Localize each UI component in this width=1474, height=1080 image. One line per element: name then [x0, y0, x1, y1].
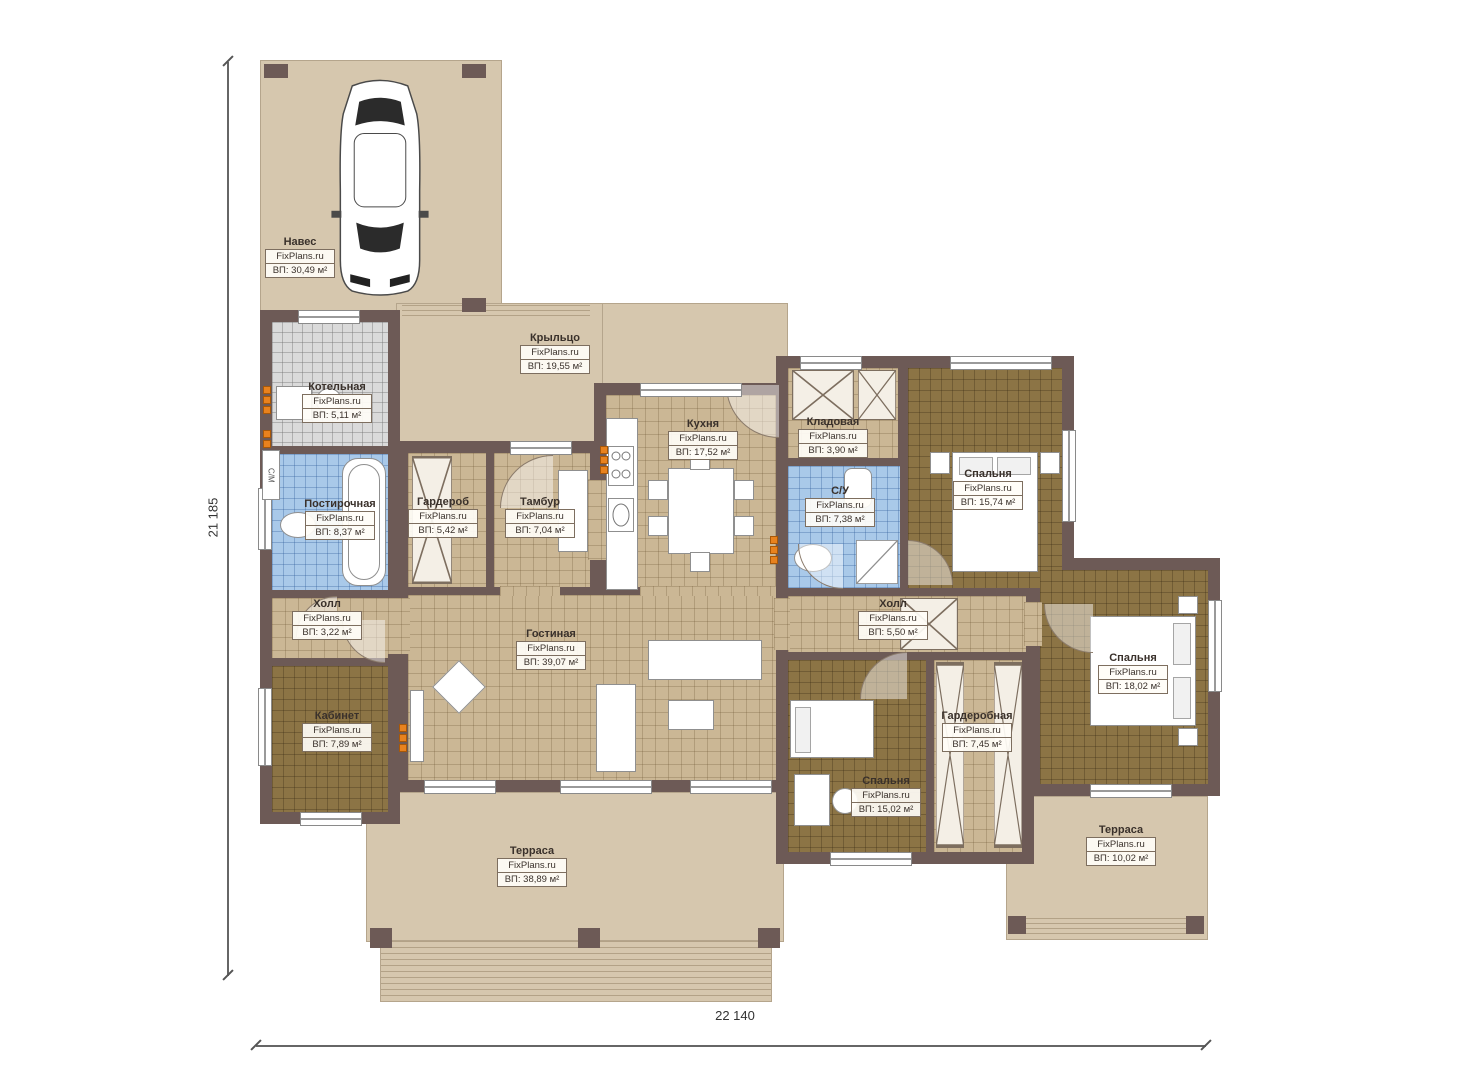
coffee-table — [668, 700, 714, 730]
room-area: ВП: 15,74 м² — [953, 495, 1023, 510]
radiator-marker — [263, 384, 271, 416]
room-label-closet: Гардеробная FixPlans.ru ВП: 7,45 м² — [922, 710, 1032, 752]
room-name: Гардеробная — [922, 710, 1032, 722]
room-name: Спальня — [933, 468, 1043, 480]
room-brand: FixPlans.ru — [858, 611, 928, 626]
dimension-line-horizontal — [256, 1045, 1206, 1047]
kitchen-sink — [608, 498, 634, 532]
room-brand: FixPlans.ru — [851, 788, 921, 803]
room-label-living: Гостиная FixPlans.ru ВП: 39,07 м² — [496, 628, 606, 670]
dimension-height-label: 21 185 — [206, 483, 221, 553]
room-name: Гостиная — [496, 628, 606, 640]
floor-plan: С/М — [0, 0, 1474, 1080]
chair — [734, 480, 754, 500]
room-area: ВП: 18,02 м² — [1098, 679, 1168, 694]
room-brand: FixPlans.ru — [1086, 837, 1156, 852]
room-name: Кабинет — [282, 710, 392, 722]
bed — [790, 700, 874, 758]
room-name: Навес — [245, 236, 355, 248]
opening — [640, 586, 776, 596]
storage-cabinet — [858, 370, 896, 420]
room-area: ВП: 38,89 м² — [497, 872, 567, 887]
room-area: ВП: 8,37 м² — [305, 525, 375, 540]
room-label-porch: Крыльцо FixPlans.ru ВП: 19,55 м² — [500, 332, 610, 374]
window — [640, 383, 742, 397]
room-area: ВП: 17,52 м² — [668, 445, 738, 460]
room-brand: FixPlans.ru — [798, 429, 868, 444]
room-name: Постирочная — [285, 498, 395, 510]
room-area: ВП: 7,89 м² — [302, 737, 372, 752]
window — [1208, 600, 1222, 692]
room-name: Тамбур — [485, 496, 595, 508]
terrace-post — [578, 928, 600, 948]
closet-cabinet — [936, 662, 964, 848]
room-name: Кладовая — [778, 416, 888, 428]
entrance-door — [510, 441, 572, 455]
room-brand: FixPlans.ru — [408, 509, 478, 524]
room-label-vestibule: Тамбур FixPlans.ru ВП: 7,04 м² — [485, 496, 595, 538]
room-area: ВП: 30,49 м² — [265, 263, 335, 278]
dimension-line-vertical — [227, 62, 229, 976]
room-label-pantry: Кладовая FixPlans.ru ВП: 3,90 м² — [778, 416, 888, 458]
carport-post — [462, 64, 486, 78]
room-area: ВП: 39,07 м² — [516, 655, 586, 670]
room-brand: FixPlans.ru — [265, 249, 335, 264]
room-label-bedroom1: Спальня FixPlans.ru ВП: 15,74 м² — [933, 468, 1043, 510]
room-area: ВП: 7,38 м² — [805, 512, 875, 527]
porch-steps — [402, 305, 590, 317]
room-name: Крыльцо — [500, 332, 610, 344]
tv-stand — [410, 690, 424, 762]
closet-cabinet — [994, 662, 1022, 848]
room-brand: FixPlans.ru — [497, 858, 567, 873]
carport-post — [264, 64, 288, 78]
room-brand: FixPlans.ru — [953, 481, 1023, 496]
window — [1062, 430, 1076, 522]
window — [950, 356, 1052, 370]
radiator-marker — [770, 534, 778, 566]
window — [258, 688, 272, 766]
opening — [1024, 602, 1042, 646]
room-brand: FixPlans.ru — [302, 394, 372, 409]
window — [298, 310, 360, 324]
carport-post — [462, 298, 486, 312]
window — [300, 812, 362, 826]
room-brand: FixPlans.ru — [305, 511, 375, 526]
room-area: ВП: 5,11 м² — [302, 408, 372, 423]
room-label-terrace1: Терраса FixPlans.ru ВП: 38,89 м² — [477, 845, 587, 887]
nightstand — [1178, 728, 1198, 746]
room-area: ВП: 15,02 м² — [851, 802, 921, 817]
room-name: Спальня — [831, 775, 941, 787]
room-name: Холл — [838, 598, 948, 610]
chair — [648, 516, 668, 536]
shower — [856, 540, 898, 584]
room-label-hall2: Холл FixPlans.ru ВП: 5,50 м² — [838, 598, 948, 640]
room-area: ВП: 10,02 м² — [1086, 851, 1156, 866]
room-brand: FixPlans.ru — [505, 509, 575, 524]
sofa — [596, 684, 636, 772]
terrace2-steps — [1010, 918, 1202, 938]
room-area: ВП: 19,55 м² — [520, 359, 590, 374]
terrace1-steps — [380, 940, 772, 1002]
stove — [608, 446, 634, 486]
chair — [734, 516, 754, 536]
room-brand: FixPlans.ru — [520, 345, 590, 360]
terrace-post — [1008, 916, 1026, 934]
nightstand — [1178, 596, 1198, 614]
window — [800, 356, 862, 370]
room-name: Кухня — [648, 418, 758, 430]
room-name: Спальня — [1078, 652, 1188, 664]
terrace-post — [1186, 916, 1204, 934]
radiator-marker — [600, 444, 608, 476]
room-name: Холл — [272, 598, 382, 610]
room-brand: FixPlans.ru — [805, 498, 875, 513]
porch-area-right — [602, 303, 788, 387]
room-label-laundry: Постирочная FixPlans.ru ВП: 8,37 м² — [285, 498, 395, 540]
terrace-post — [370, 928, 392, 948]
room-label-bathroom: С/У FixPlans.ru ВП: 7,38 м² — [785, 485, 895, 527]
room-brand: FixPlans.ru — [942, 723, 1012, 738]
room-label-study: Кабинет FixPlans.ru ВП: 7,89 м² — [282, 710, 392, 752]
room-area: ВП: 3,90 м² — [798, 443, 868, 458]
terrace-door — [1090, 784, 1172, 798]
room-label-bedroom2: Спальня FixPlans.ru ВП: 15,02 м² — [831, 775, 941, 817]
sofa — [648, 640, 762, 680]
room-label-wardrobe: Гардероб FixPlans.ru ВП: 5,42 м² — [388, 496, 498, 538]
room-brand: FixPlans.ru — [302, 723, 372, 738]
opening — [774, 598, 790, 650]
storage-cabinet — [792, 370, 854, 420]
room-label-boiler: Котельная FixPlans.ru ВП: 5,11 м² — [282, 381, 392, 423]
room-brand: FixPlans.ru — [516, 641, 586, 656]
chair — [690, 552, 710, 572]
room-brand: FixPlans.ru — [668, 431, 738, 446]
opening — [388, 598, 410, 654]
room-area: ВП: 7,45 м² — [942, 737, 1012, 752]
room-label-carport: Навес FixPlans.ru ВП: 30,49 м² — [245, 236, 355, 278]
room-brand: FixPlans.ru — [292, 611, 362, 626]
nightstand — [1040, 452, 1060, 474]
window — [690, 780, 772, 794]
room-label-terrace2: Терраса FixPlans.ru ВП: 10,02 м² — [1066, 824, 1176, 866]
window — [424, 780, 496, 794]
room-name: Терраса — [477, 845, 587, 857]
desk — [794, 774, 830, 826]
room-name: Терраса — [1066, 824, 1176, 836]
window — [830, 852, 912, 866]
room-label-hall1: Холл FixPlans.ru ВП: 3,22 м² — [272, 598, 382, 640]
room-area: ВП: 3,22 м² — [292, 625, 362, 640]
chair — [648, 480, 668, 500]
dimension-width-label: 22 140 — [695, 1008, 775, 1023]
room-brand: FixPlans.ru — [1098, 665, 1168, 680]
room-name: С/У — [785, 485, 895, 497]
room-area: ВП: 5,42 м² — [408, 523, 478, 538]
radiator-marker — [399, 722, 407, 754]
room-area: ВП: 7,04 м² — [505, 523, 575, 538]
washing-machine: С/М — [262, 450, 280, 500]
opening — [500, 586, 560, 596]
room-name: Гардероб — [388, 496, 498, 508]
terrace-door — [560, 780, 652, 794]
room-area: ВП: 5,50 м² — [858, 625, 928, 640]
room-name: Котельная — [282, 381, 392, 393]
dining-table — [668, 468, 734, 554]
room-label-bedroom3: Спальня FixPlans.ru ВП: 18,02 м² — [1078, 652, 1188, 694]
room-label-kitchen: Кухня FixPlans.ru ВП: 17,52 м² — [648, 418, 758, 460]
terrace-post — [758, 928, 780, 948]
